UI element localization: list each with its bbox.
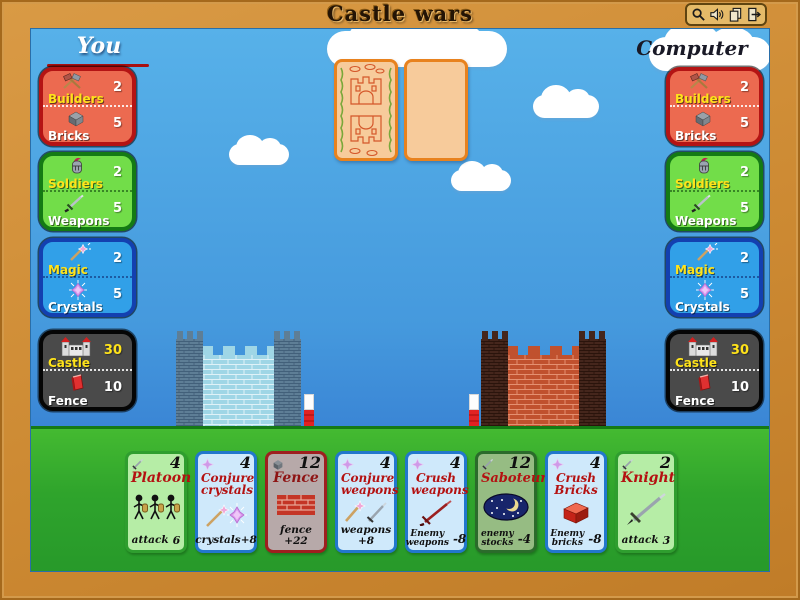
- card-title: Crush weapons: [411, 473, 461, 496]
- crush-bricks-art: [551, 496, 601, 530]
- crystals-count: 5: [740, 287, 749, 302]
- fence-icon: [67, 373, 87, 397]
- conjure-crystals-art: [201, 496, 251, 533]
- copy-icon[interactable]: [728, 7, 743, 22]
- card-crush-weapons[interactable]: 4 Crush weapons Enemyweapons-8: [405, 451, 467, 553]
- crystals-count: 5: [113, 287, 122, 302]
- computer-soldiers-panel: 2 Soldiers 5 Weapons: [666, 152, 763, 231]
- cloud: [451, 170, 511, 191]
- builders-count: 2: [113, 80, 122, 95]
- card-title: Conjure weapons: [341, 473, 391, 496]
- game-board: You Computer 2 Builders 5 Bricks 2 Soldi…: [30, 28, 770, 572]
- exit-icon[interactable]: [746, 7, 761, 22]
- magic-count: 2: [113, 251, 122, 266]
- card-platoon[interactable]: 4 Platoon attack6: [125, 451, 187, 553]
- cloud: [533, 95, 599, 118]
- castle-count: 30: [731, 343, 749, 358]
- page-title: Castle wars: [0, 1, 800, 26]
- soldiers-count: 2: [113, 165, 122, 180]
- card-effect: attack6: [131, 533, 181, 547]
- you-castle-panel: 30 Castle 10 Fence: [39, 330, 136, 411]
- card-effect: attack3: [621, 533, 671, 547]
- magic-count: 2: [740, 251, 749, 266]
- crystals-label: Crystals: [675, 300, 730, 314]
- weapons-label: Weapons: [48, 214, 110, 228]
- card-title: Knight: [621, 473, 671, 485]
- card-title: Crush Bricks: [551, 473, 601, 496]
- card-knight[interactable]: 2 Knight attack3: [615, 451, 677, 553]
- saboteur-art: [481, 485, 531, 531]
- you-soldiers-panel: 2 Soldiers 5 Weapons: [39, 152, 136, 231]
- card-cost: 4: [170, 456, 181, 470]
- builders-label: Builders: [48, 92, 104, 106]
- card-saboteur[interactable]: 12 Saboteur enemystocks-4: [475, 451, 537, 553]
- magic-label: Magic: [48, 263, 88, 277]
- fence-count: 10: [104, 380, 122, 395]
- knight-art: [621, 485, 671, 534]
- card-conjure-crystals[interactable]: 4 Conjure crystals crystals+8: [195, 451, 257, 553]
- card-effect: Enemybricks-8: [551, 530, 601, 547]
- card-title: Platoon: [131, 473, 181, 485]
- card-effect: Enemyweapons-8: [411, 530, 461, 547]
- card-title: Saboteur: [481, 473, 531, 485]
- you-fence-pole: [304, 394, 314, 427]
- card-effect: fence +22: [271, 525, 321, 547]
- conjure-weapons-art: [341, 496, 391, 525]
- builders-count: 2: [740, 80, 749, 95]
- bricks-label: Bricks: [48, 129, 89, 143]
- card-cost: 12: [299, 456, 321, 470]
- computer-castle: [481, 329, 606, 426]
- card-effect: enemystocks-4: [481, 530, 531, 547]
- platoon-art: [131, 485, 181, 534]
- card-cost: 4: [380, 456, 391, 470]
- bricks-label: Bricks: [675, 129, 716, 143]
- card-effect: weapons +8: [341, 525, 391, 547]
- you-castle: [176, 329, 301, 426]
- card-cost: 4: [240, 456, 251, 470]
- castle-label: Castle: [48, 356, 90, 370]
- castle-count: 30: [104, 343, 122, 358]
- player-label-you: You: [51, 33, 147, 59]
- computer-magic-panel: 2 Magic 5 Crystals: [666, 238, 763, 317]
- computer-builders-panel: 2 Builders 5 Bricks: [666, 67, 763, 146]
- crystals-label: Crystals: [48, 300, 103, 314]
- weapons-label: Weapons: [675, 214, 737, 228]
- you-magic-panel: 2 Magic 5 Crystals: [39, 238, 136, 317]
- card-cost: 12: [509, 456, 531, 470]
- card-title: Conjure crystals: [201, 473, 251, 496]
- player-label-computer: Computer: [627, 36, 757, 60]
- window-toolbar: [685, 3, 767, 26]
- builders-label: Builders: [675, 92, 731, 106]
- fence-label: Fence: [48, 394, 88, 408]
- fence-count: 10: [731, 380, 749, 395]
- magnifier-icon[interactable]: [691, 7, 706, 22]
- hand-card-row: 4 Platoon attack6 4: [31, 451, 770, 553]
- fence-art: [271, 485, 321, 526]
- bricks-count: 5: [740, 116, 749, 131]
- card-title: Fence: [271, 473, 321, 485]
- you-builders-panel: 2 Builders 5 Bricks: [39, 67, 136, 146]
- weapons-count: 5: [113, 201, 122, 216]
- card-cost: 4: [450, 456, 461, 470]
- card-effect: crystals+8: [201, 533, 251, 547]
- cloud: [229, 144, 289, 165]
- castle-label: Castle: [675, 356, 717, 370]
- sound-icon[interactable]: [709, 7, 724, 22]
- computer-castle-panel: 30 Castle 10 Fence: [666, 330, 763, 411]
- card-crush-bricks[interactable]: 4 Crush Bricks Enemybricks-8: [545, 451, 607, 553]
- soldiers-label: Soldiers: [675, 177, 730, 191]
- soldiers-count: 2: [740, 165, 749, 180]
- bricks-count: 5: [113, 116, 122, 131]
- card-cost: 2: [660, 456, 671, 470]
- crush-weapons-art: [411, 496, 461, 530]
- discard-slot-card[interactable]: [404, 59, 468, 161]
- weapons-count: 5: [740, 201, 749, 216]
- fence-label: Fence: [675, 394, 715, 408]
- card-conjure-weapons[interactable]: 4 Conjure weapons weapons +8: [335, 451, 397, 553]
- card-cost: 4: [590, 456, 601, 470]
- card-fence[interactable]: 12 Fence fence +22: [265, 451, 327, 553]
- soldiers-label: Soldiers: [48, 177, 103, 191]
- computer-fence-pole: [469, 394, 479, 427]
- deck-card-back[interactable]: [334, 59, 398, 161]
- fence-icon: [694, 373, 714, 397]
- magic-label: Magic: [675, 263, 715, 277]
